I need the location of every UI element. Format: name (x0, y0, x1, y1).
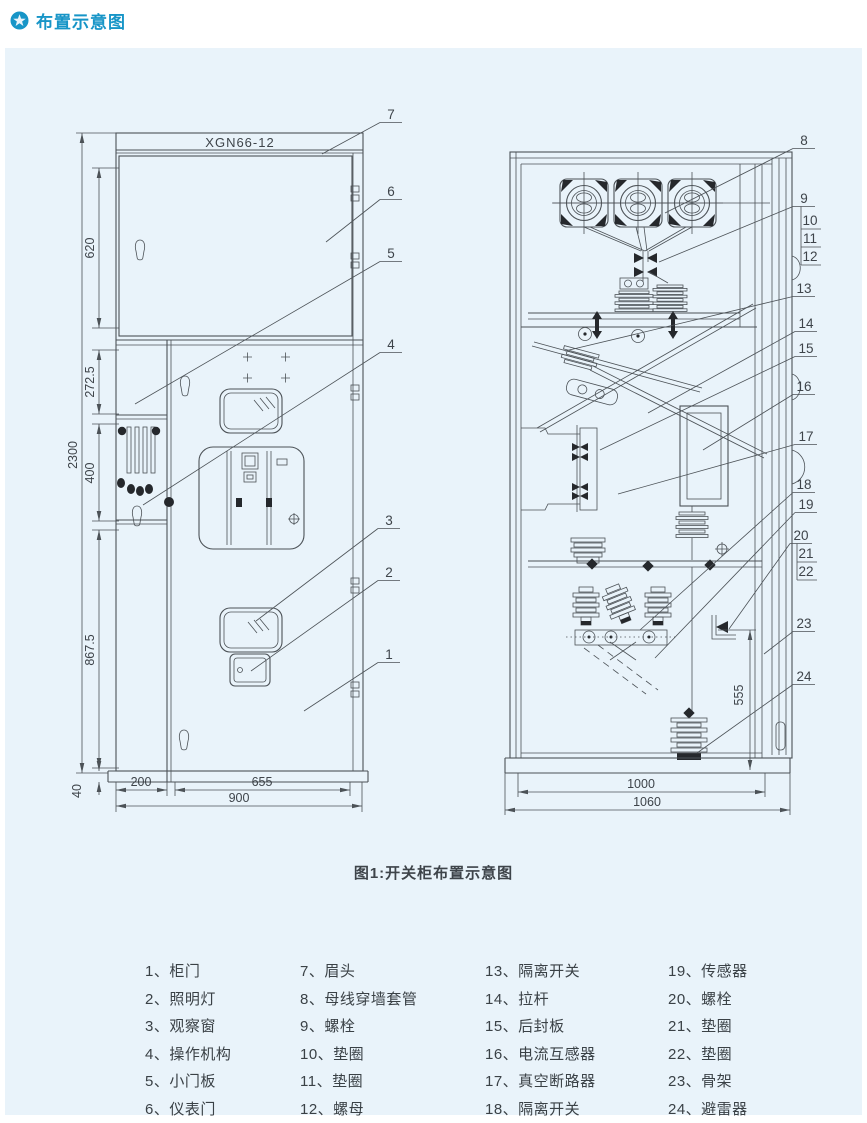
legend-item: 8、母线穿墙套管 (300, 986, 417, 1014)
side-view-dimensions: 555 1000 1060 (505, 630, 790, 815)
observation-window-upper (220, 389, 282, 433)
callout-9: 9 (800, 191, 808, 206)
callout-18: 18 (796, 477, 811, 492)
callout-16: 16 (796, 379, 811, 394)
callout-11: 11 (803, 231, 817, 246)
door-hinge (792, 256, 800, 280)
legend-column-2: 7、眉头 8、母线穿墙套管 9、螺栓 10、垫圈 11、垫圈 12、螺母 (300, 958, 417, 1123)
observation-window-lower (220, 608, 282, 652)
callout-1: 1 (385, 647, 393, 662)
front-view (108, 133, 368, 782)
page: { "header": { "title": "布置示意图", "icon": … (0, 0, 867, 1115)
dim-655: 655 (252, 775, 273, 789)
figure-caption: 图1:开关柜布置示意图 (0, 862, 867, 883)
main-door (179, 353, 304, 750)
legend-item: 12、螺母 (300, 1096, 417, 1123)
callout-20: 20 (793, 528, 808, 543)
side-view (505, 152, 805, 773)
callout-10: 10 (802, 213, 817, 228)
legend-item: 9、螺栓 (300, 1013, 417, 1041)
side-base (505, 753, 790, 773)
legend-item: 14、拉杆 (485, 986, 596, 1014)
dim-200: 200 (131, 775, 152, 789)
callout-6: 6 (387, 184, 395, 199)
legend-item: 17、真空断路器 (485, 1068, 596, 1096)
legend-item: 19、传感器 (668, 958, 748, 986)
legend-column-1: 1、柜门 2、照明灯 3、观察窗 4、操作机构 5、小门板 6、仪表门 (145, 958, 231, 1123)
sensor-bracket (712, 615, 736, 639)
legend-item: 3、观察窗 (145, 1013, 231, 1041)
operating-mechanism-panel (199, 447, 304, 549)
dim-620: 620 (83, 238, 97, 259)
shelf-insulator (571, 538, 605, 563)
legend-item: 21、垫圈 (668, 1013, 748, 1041)
instrument-door (119, 156, 352, 336)
callout-7: 7 (387, 107, 395, 122)
callout-17: 17 (798, 429, 813, 444)
figure-drawing: 2300 620 272.5 400 867.5 40 200 655 900 … (0, 48, 867, 848)
legend-item: 1、柜门 (145, 958, 231, 986)
legend-item: 18、隔离开关 (485, 1096, 596, 1123)
ventilation-grille (117, 427, 174, 507)
callout-8: 8 (800, 133, 808, 148)
callout-22: 22 (798, 564, 813, 579)
legend-item: 24、避雷器 (668, 1096, 748, 1123)
page-title: 布置示意图 (36, 8, 126, 33)
legend-item: 20、螺栓 (668, 986, 748, 1014)
callout-19: 19 (798, 497, 813, 512)
legend-column-3: 13、隔离开关 14、拉杆 15、后封板 16、电流互感器 17、真空断路器 1… (485, 958, 596, 1123)
legend-item: 11、垫圈 (300, 1068, 417, 1096)
dim-272: 272.5 (83, 366, 97, 397)
dim-555: 555 (732, 685, 746, 706)
page-header: 布置示意图 (10, 8, 126, 33)
dim-1000: 1000 (627, 777, 655, 791)
legend-item: 7、眉头 (300, 958, 417, 986)
plus-marks (243, 353, 290, 383)
star-badge-icon (10, 11, 29, 30)
legend-item: 22、垫圈 (668, 1041, 748, 1069)
callout-14: 14 (798, 316, 814, 331)
callout-5: 5 (387, 246, 395, 261)
legend-item: 10、垫圈 (300, 1041, 417, 1069)
legend-item: 6、仪表门 (145, 1096, 231, 1123)
callout-21: 21 (798, 546, 813, 561)
bolt-washer-stack (634, 253, 668, 283)
front-view-dimensions: 2300 620 272.5 400 867.5 40 200 655 900 (66, 133, 362, 812)
callout-12: 12 (802, 249, 817, 264)
lower-shelf (528, 558, 762, 571)
callout-15: 15 (798, 341, 813, 356)
lightning-arrester (671, 707, 707, 760)
door-handle (776, 722, 785, 750)
legend-item: 16、电流互感器 (485, 1041, 596, 1069)
callout-23: 23 (796, 616, 811, 631)
legend-item: 2、照明灯 (145, 986, 231, 1014)
keyhole (135, 240, 144, 260)
legend-column-4: 19、传感器 20、螺栓 21、垫圈 22、垫圈 23、骨架 24、避雷器 (668, 958, 748, 1123)
callout-13: 13 (796, 281, 811, 296)
rear-seal-plate (521, 425, 597, 512)
dim-867: 867.5 (83, 634, 97, 665)
legend-item: 23、骨架 (668, 1068, 748, 1096)
callout-24: 24 (796, 669, 812, 684)
callout-2: 2 (385, 565, 393, 580)
callout-3: 3 (385, 513, 393, 528)
legend-item: 4、操作机构 (145, 1041, 231, 1069)
legend-item: 5、小门板 (145, 1068, 231, 1096)
lamp-window (230, 654, 270, 686)
model-label: XGN66-12 (205, 135, 274, 150)
spring-stack (676, 506, 708, 560)
dim-400: 400 (83, 463, 97, 484)
callout-4: 4 (387, 337, 395, 352)
legend-item: 15、后封板 (485, 1013, 596, 1041)
dim-1060: 1060 (633, 795, 661, 809)
vacuum-breaker (566, 582, 676, 694)
legend-item: 13、隔离开关 (485, 958, 596, 986)
dim-total-height: 2300 (66, 441, 80, 469)
current-transformer (680, 406, 729, 556)
dim-900: 900 (229, 791, 250, 805)
dim-40: 40 (70, 784, 84, 798)
